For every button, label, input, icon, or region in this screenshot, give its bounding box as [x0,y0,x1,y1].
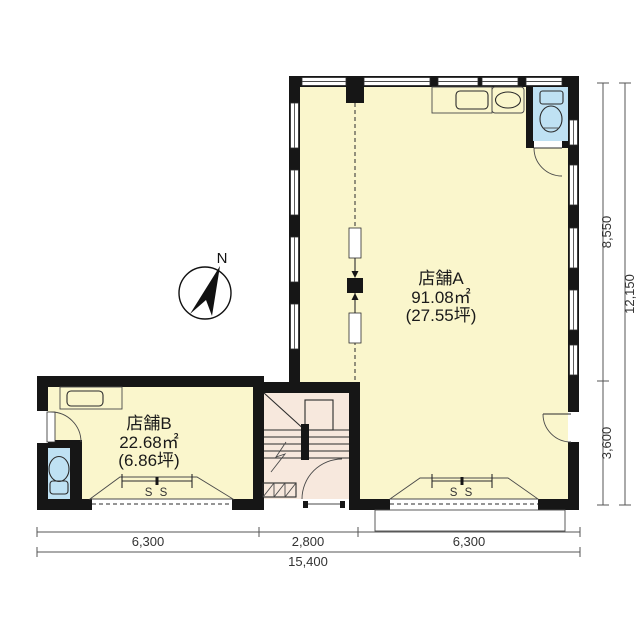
dim-bottom-left: 6,300 [132,534,165,549]
dim-bottom-total: 15,400 [288,554,328,569]
porch [375,510,565,531]
unit-b-label: 店舗B 22.68㎡ (6.86坪) [118,414,179,470]
dimension-right: 8,550 3,600 12,150 [597,83,637,505]
partition-post [347,278,363,293]
dim-bottom-right: 6,300 [453,534,486,549]
dim-right-total: 12,150 [622,274,637,314]
partition-panel-lower [349,313,361,343]
north-label: N [217,250,228,267]
unit-a-tsubo: (27.55坪) [406,306,477,325]
unit-b-area: 22.68㎡ [119,433,179,452]
shutter-label-b: S S [145,487,170,499]
toilet-room-b [48,448,70,499]
stair-rail-wall [301,424,309,460]
shutter-label-a: S S [450,487,475,499]
unit-b-tsubo: (6.86坪) [118,451,179,470]
floorplan-screenshot: S S S S 店舗A 91.08㎡ (27.55坪) 店舗B 22.68㎡ (… [0,0,640,640]
north-arrow-icon: N [179,250,231,319]
dim-bottom-center: 2,800 [292,534,325,549]
unit-a-area: 91.08㎡ [411,288,471,307]
dimension-bottom: 6,300 2,800 6,300 15,400 [37,527,580,569]
dim-right-upper: 8,550 [599,216,614,249]
unit-a-name: 店舗A [418,269,464,288]
unit-b-name: 店舗B [126,414,171,433]
floor-plan: S S S S 店舗A 91.08㎡ (27.55坪) 店舗B 22.68㎡ (… [0,0,640,640]
partition-panel-upper [349,228,361,258]
wall-stub [346,76,364,103]
dim-right-lower: 3,600 [599,427,614,460]
